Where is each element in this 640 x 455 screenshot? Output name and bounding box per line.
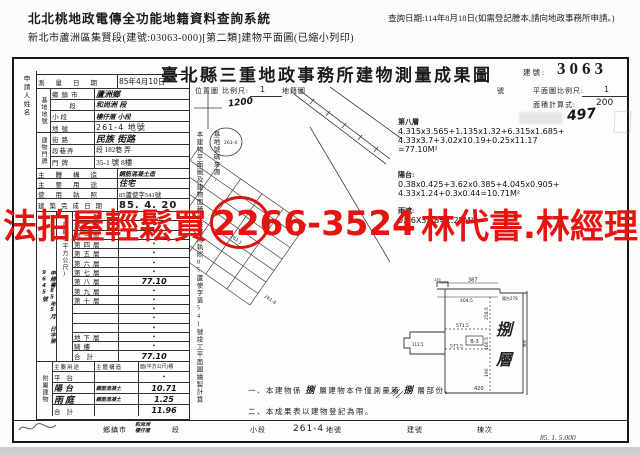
lane-value: 段 182巷 弄	[95, 145, 189, 156]
site-township-label: 鄉鎮市	[51, 89, 95, 99]
dim-571-5-b: 571.5	[450, 344, 463, 350]
address-group-label: 建物門牌	[37, 133, 51, 168]
floor-label: 第十層	[73, 296, 119, 304]
bottom-parcel-label: 地號	[326, 425, 342, 435]
note1-post: 層部份。	[418, 386, 454, 395]
scanned-document-page: 北北桃地政電傳全功能地籍資料查詢系統 查詢日期:114年8月18日(如需登記謄本…	[0, 0, 640, 455]
bottom-township-handwritten: 和尚洲 樓仔厝	[135, 422, 150, 434]
floor-value: •	[119, 286, 189, 294]
location-map-sketch: 261-1 261-4 261-9	[190, 87, 402, 421]
note1-mid: 層建物本件僅測量第	[319, 386, 400, 395]
attached-row-area: 1.25	[139, 394, 189, 404]
system-title: 北北桃地政電傳全功能地籍資料查詢系統	[28, 8, 271, 27]
attached-row-structure: 鋼筋混凝土	[95, 383, 139, 393]
floor-label: 第七層	[73, 268, 119, 276]
lane-label: 段巷弄	[51, 145, 95, 156]
floor-value: •	[119, 296, 189, 304]
attached-row-structure	[95, 372, 139, 382]
wall-balcony-label: 陽台	[522, 340, 527, 348]
floor-value: •	[119, 258, 189, 266]
plan-scale-num: 1	[604, 85, 609, 94]
unit-label-b3: B-3	[470, 339, 478, 345]
arcade-label: 騎樓	[73, 342, 119, 350]
attached-row-structure: 鋼筋混凝土	[95, 394, 139, 404]
floor8-area-value: 77.10	[119, 277, 189, 285]
floor-value: •	[119, 314, 189, 322]
table-row: 段巷弄 段 182巷 弄	[51, 145, 189, 157]
floor-value: •	[119, 249, 189, 257]
parcel-number: 261-9	[263, 294, 277, 306]
use-label: 主要用途	[37, 179, 118, 188]
balcony-calc-result: 4.33x1.24+0.3x0.44=10.71M²	[398, 189, 583, 198]
site-parcel-value: 261-4 地號	[95, 122, 189, 133]
parcel-source-note: 基地號碼來源:	[210, 131, 220, 209]
floor-label	[73, 324, 119, 332]
floor-value: •	[119, 342, 189, 350]
attached-total-area: 11.96	[139, 405, 189, 416]
table-row: 主要用途 住宅	[37, 179, 189, 189]
survey-date-label: 測量日期	[37, 75, 118, 88]
red-ad-overlay: 法拍屋輕鬆買 2266-3524 林代書.林經理	[3, 199, 638, 248]
table-row: 小段 樓仔厝 小段	[51, 111, 189, 122]
floor-label	[73, 314, 119, 322]
door-no-value: 35-1 號 8樓	[95, 157, 189, 168]
site-parcel-label: 地號	[51, 122, 95, 133]
red-circle-annotation	[210, 196, 270, 249]
total-area-value: 77.10	[119, 351, 189, 360]
floor-label: 第九層	[73, 286, 119, 294]
license-label: 使用執照	[37, 189, 118, 198]
attached-group: 附屬建物 主要用途 主體構造 面(平方公尺)積 平台 • 陽台 鋼筋混凝土	[37, 362, 189, 416]
floor-value: •	[119, 324, 189, 332]
dim-404-5: 404.5	[460, 298, 473, 304]
plan-scale-line	[582, 96, 628, 97]
note1-handwritten-floor: 捌	[305, 386, 316, 396]
document-subtitle: 新北市蘆洲區集賢段(建號:03063-000)[第二類]建物平面圖(已縮小列印)	[28, 29, 354, 44]
attached-row-use: 平台	[53, 372, 95, 382]
floor-label	[73, 305, 119, 313]
plan-basis-note: 本建物平面圖及建物面積係依使用執照85蘆使字第541號竣工平面圖繪製計算	[193, 131, 203, 413]
cadastre-no-label: 號	[497, 86, 505, 96]
table-row: 主體構造 鋼筋混凝土造	[37, 169, 189, 179]
bottom-subsection-label: 小段	[250, 425, 266, 435]
structure-value: 鋼筋混凝土造	[118, 169, 189, 178]
floor-tag-char2: 層	[495, 350, 514, 369]
bottom-divider	[14, 420, 627, 421]
dim-112-5: 112.5	[412, 342, 424, 347]
floor-value: •	[119, 305, 189, 313]
bottom-township-label: 鄉鎮市	[103, 425, 127, 435]
parcel-number: 261-4	[224, 140, 237, 146]
floor-label: 第八層	[73, 277, 119, 285]
handwritten-scribble	[18, 422, 58, 434]
attached-row-area: •	[139, 372, 189, 382]
application-doc-no: 申請書85年5月 日字第9645號	[40, 270, 56, 361]
street-value: 民族 街路	[95, 133, 189, 144]
applicant-label: 申請人姓名	[20, 75, 30, 118]
site-subsection-label: 小段	[51, 111, 95, 121]
structure-label: 主體構造	[37, 169, 118, 178]
survey-form-frame: 臺北縣三重地政事務所建物測量成果圖 建號: 3063 申請人姓名 測量日期 85…	[12, 57, 629, 443]
use-value: 住宅	[118, 179, 189, 188]
ad-text-left: 法拍屋輕鬆買	[3, 199, 207, 248]
floor8-calc-result: =77.10M²	[398, 145, 583, 154]
floor8-calc-label: 第八層	[398, 117, 583, 127]
floor8-calc-line: 4.33x3.7+3.02x10.19+0.25x11.17	[398, 136, 583, 145]
attached-group-label: 附屬建物	[37, 362, 53, 416]
dim-420: 420	[474, 386, 484, 392]
table-row: 門牌 35-1 號 8樓	[51, 157, 189, 168]
note-1: 一、本建物係 捌 層建物本件僅測量第 捌 層部份。	[248, 383, 454, 396]
site-subsection-value: 樓仔厝 小段	[95, 111, 189, 121]
floor-value: •	[119, 268, 189, 276]
building-no-value: 3063	[557, 59, 607, 79]
table-row: 街路 民族 街路	[51, 133, 189, 145]
basement-label: 地下層	[73, 333, 119, 341]
plan-scale-label: 平面圖比例尺:	[533, 86, 584, 96]
site-township-value: 蘆洲鄉	[95, 89, 189, 99]
table-row: 地號 261-4 地號	[51, 122, 189, 133]
dim-135: 135	[434, 278, 441, 282]
balcony-calc-line: 0.38x0.425+3.62x0.385+4.045x0.905+	[398, 180, 583, 189]
license-value: 85蘆使字541號	[118, 189, 189, 198]
attached-total-label: 合計	[53, 405, 95, 416]
door-no-label: 門牌	[51, 157, 95, 168]
table-row: 測量日期 85年4月10日	[37, 75, 189, 89]
dim-571-5-a: 571.5	[456, 323, 469, 329]
balcony-calc-label: 陽台:	[398, 170, 583, 180]
bottom-parcel-number: 261-4	[293, 424, 324, 434]
floor-label: 第五層	[73, 249, 119, 257]
attached-row-area: 10.71	[139, 383, 189, 393]
table-row: 鄉鎮市 蘆洲鄉	[51, 89, 189, 100]
bottom-section-label: 段	[172, 425, 180, 435]
attached-area-header: 面(平方公尺)積	[139, 362, 189, 371]
site-parcel-group: 基地地號 鄉鎮市 蘆洲鄉 段 和尚洲 段 小段 樓仔厝 小段	[37, 89, 189, 133]
bottom-unit-label: 棟次	[477, 425, 493, 435]
attached-use-header: 主要用途	[53, 362, 95, 371]
attached-row-use: 陽台	[53, 383, 95, 393]
site-section-value: 和尚洲 段	[95, 100, 189, 110]
table-row: 段 和尚洲 段	[51, 100, 189, 111]
note1-pre: 一、本建物係	[248, 386, 302, 395]
site-group-label: 基地地號	[37, 89, 51, 132]
form-title: 臺北縣三重地政事務所建物測量成果圖	[161, 61, 493, 86]
form-code: 85. 1. 5.000	[540, 433, 576, 442]
dim-balcony-278: 陽台278	[502, 295, 518, 301]
bottom-hw-line2: 樓仔厝	[135, 428, 150, 434]
dim-190: 190	[484, 368, 490, 377]
dim-258-5: 258.5	[484, 307, 490, 320]
note1-handwritten-floor2: 捌	[404, 386, 415, 396]
table-row: 使用執照 85蘆使字541號	[37, 189, 189, 199]
bottom-building-no-label: 建號	[407, 425, 423, 435]
attached-row-structure	[95, 405, 139, 416]
floor-label: 第六層	[73, 258, 119, 266]
page-bottom-strip	[0, 447, 640, 455]
floor8-calc-line: 4.315x3.565+1.135x1.32+6.315x1.685+	[398, 127, 583, 136]
site-section-label: 段	[51, 100, 95, 110]
street-label: 街路	[51, 133, 95, 144]
floor-value: •	[119, 333, 189, 341]
survey-date-value: 85年4月10日	[118, 75, 189, 88]
query-date: 查詢日期:114年8月18日(如需登記謄本,請向地政事務所申請。)	[388, 12, 615, 24]
plan-scale-den: 200	[596, 98, 613, 108]
total-label: 合計	[73, 351, 119, 360]
dim-387: 387	[468, 278, 478, 284]
dim-160-5: 160.5	[484, 337, 490, 350]
attached-structure-header: 主體構造	[95, 362, 139, 371]
attached-row-use: 雨庭	[53, 394, 95, 404]
building-no-label: 建號:	[523, 67, 546, 78]
note-2: 二、本成果表以建物登記為限。	[248, 406, 374, 417]
ad-text-right: 林代書.林經理	[421, 199, 638, 248]
faint-stamp-box	[613, 111, 631, 134]
floor-tag-char1: 捌	[496, 320, 515, 339]
address-group: 建物門牌 街路 民族 街路 段巷弄 段 182巷 弄 門牌 35-1 號 8樓	[37, 133, 189, 169]
